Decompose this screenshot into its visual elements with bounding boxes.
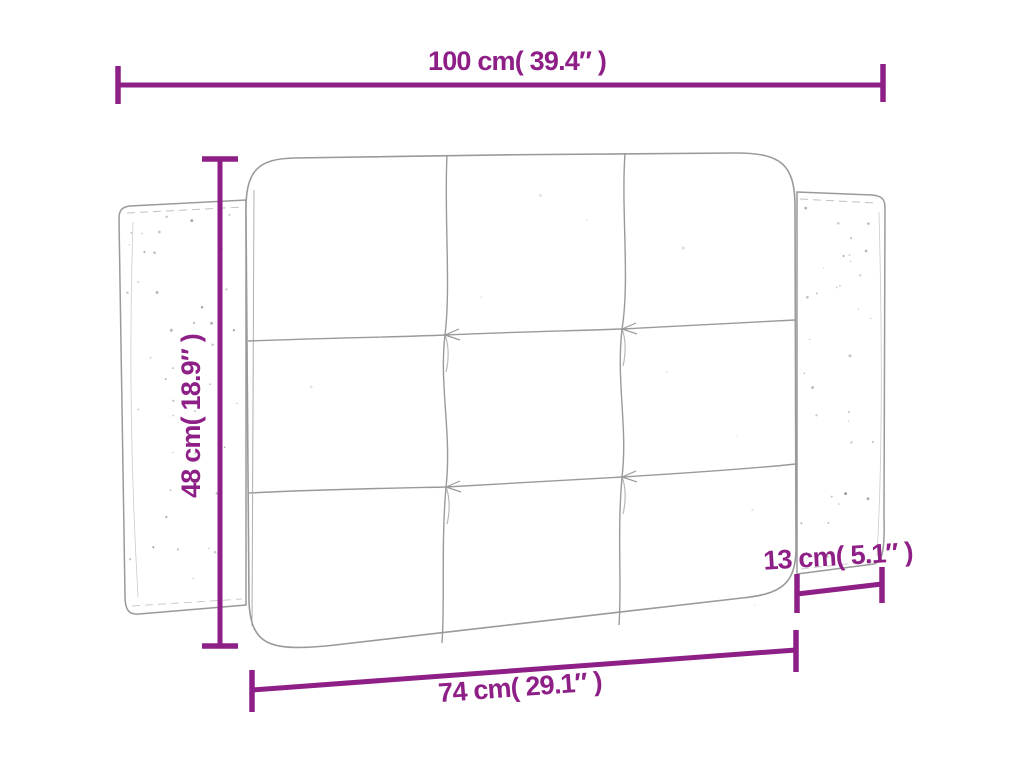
diagram-canvas: 100 cm( 39.4″ ) 48 cm( 18.9″ ) 74 cm( 29… xyxy=(0,0,1024,768)
height-dimension-label: 48 cm( 18.9″ ) xyxy=(177,334,207,498)
width-dimension-label: 100 cm( 39.4″ ) xyxy=(428,47,606,77)
headboard-line-art xyxy=(0,0,1024,768)
right-side-panel-outline xyxy=(797,192,885,574)
wing-width-dimension-line xyxy=(797,567,882,613)
main-cushion xyxy=(246,153,796,647)
main-cushion-outline xyxy=(246,153,796,647)
right-side-panel xyxy=(797,192,885,574)
